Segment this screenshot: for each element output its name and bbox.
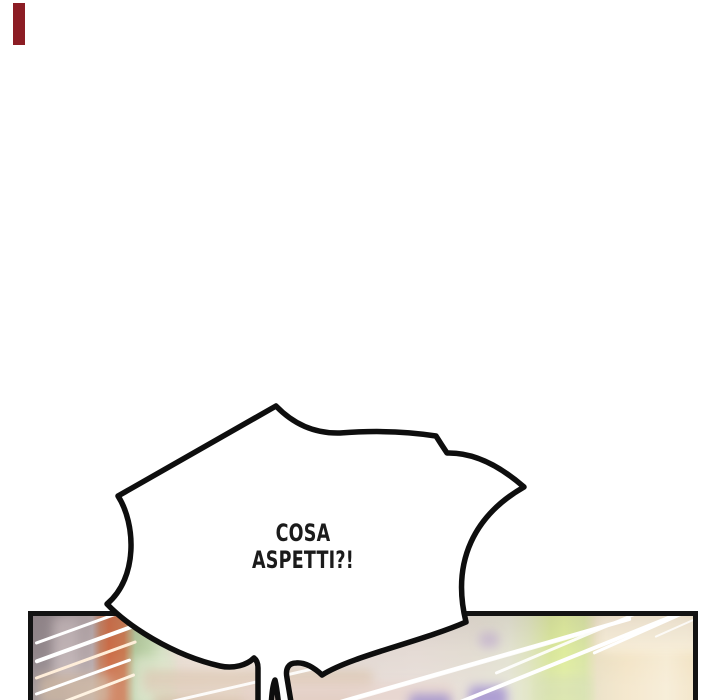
bubble-text-line-1: COSA xyxy=(201,520,405,547)
bubble-text-line-2: ASPETTI?! xyxy=(201,547,405,574)
shout-bubble xyxy=(0,0,720,700)
bubble-text: COSA ASPETTI?! xyxy=(201,520,405,573)
comic-panel: COSA ASPETTI?! xyxy=(0,0,720,700)
